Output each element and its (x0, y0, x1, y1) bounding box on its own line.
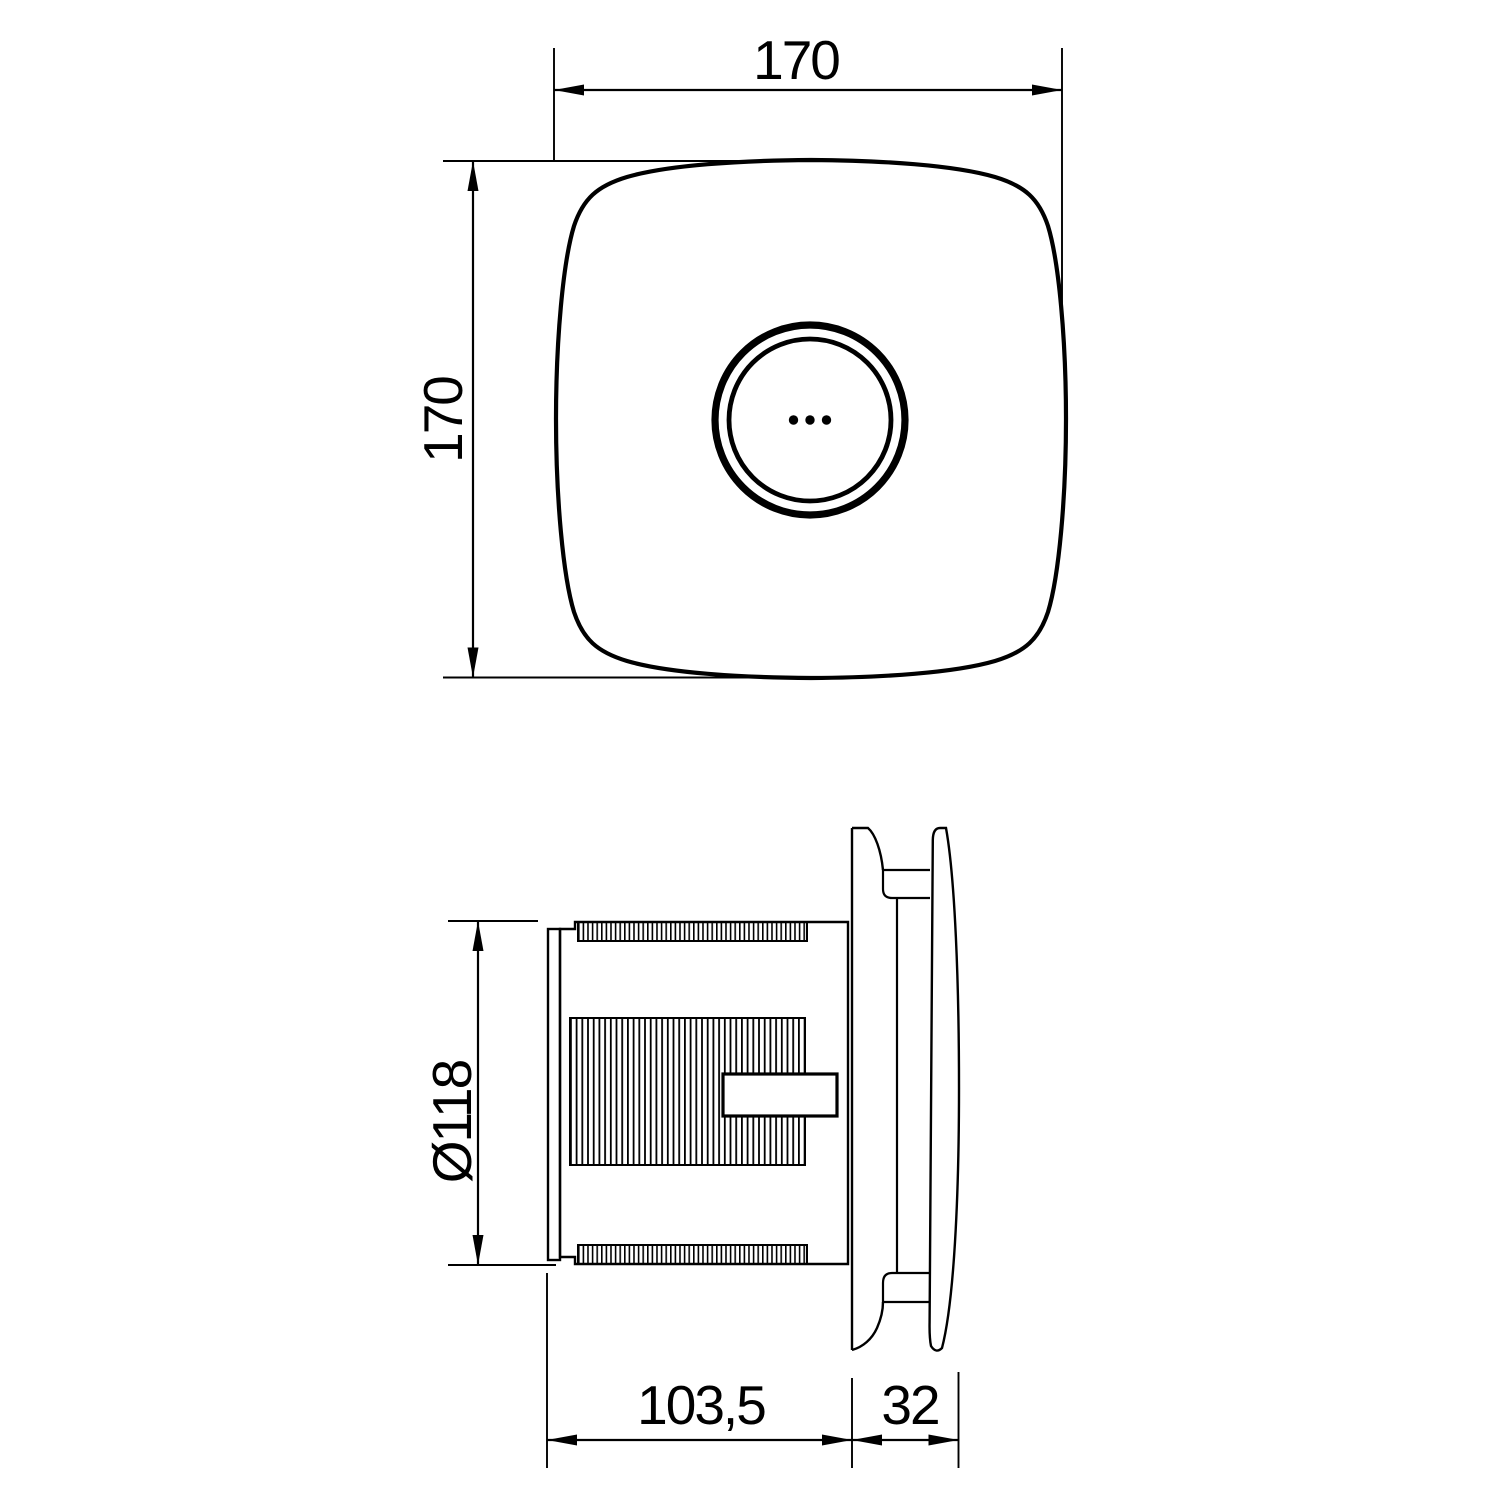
back-flange (548, 929, 560, 1260)
side-view (548, 828, 959, 1351)
dim-duct-diameter: Ø118 (421, 921, 556, 1265)
dim-front-width: 170 (554, 29, 1062, 310)
front-cover-profile (930, 828, 959, 1351)
cover-clip-top (883, 870, 930, 898)
dim-depth-front: 32 (852, 1372, 959, 1468)
arrowhead-left (852, 1435, 882, 1446)
arrowhead-right (822, 1435, 852, 1446)
dim-label-depth-front: 32 (881, 1374, 938, 1436)
arrowhead-left (554, 85, 584, 96)
mounting-frame (852, 828, 930, 1350)
arrowhead-right (1032, 85, 1062, 96)
dim-label-front-width: 170 (753, 29, 839, 91)
arrowhead-down (473, 1235, 484, 1265)
dim-depth-body: 103,5 (547, 1273, 852, 1468)
arrowhead-right (929, 1435, 959, 1446)
arrowhead-down (468, 648, 479, 678)
drawing-canvas: 170 170 (0, 0, 1501, 1501)
front-view (556, 160, 1066, 678)
dim-label-duct-diameter: Ø118 (421, 1060, 483, 1183)
terminal-box (723, 1074, 837, 1116)
arrowhead-up (468, 161, 479, 191)
cover-clip-bottom (883, 1273, 930, 1302)
dim-label-front-height: 170 (412, 377, 474, 463)
rib-band-bottom (578, 1245, 807, 1264)
dim-label-depth-body: 103,5 (637, 1374, 765, 1436)
indicator-dots (789, 415, 831, 424)
rib-band-top (578, 922, 807, 941)
arrowhead-left (547, 1435, 577, 1446)
arrowhead-up (473, 921, 484, 951)
dim-front-height: 170 (412, 161, 845, 678)
technical-drawing: 170 170 (0, 0, 1501, 1501)
